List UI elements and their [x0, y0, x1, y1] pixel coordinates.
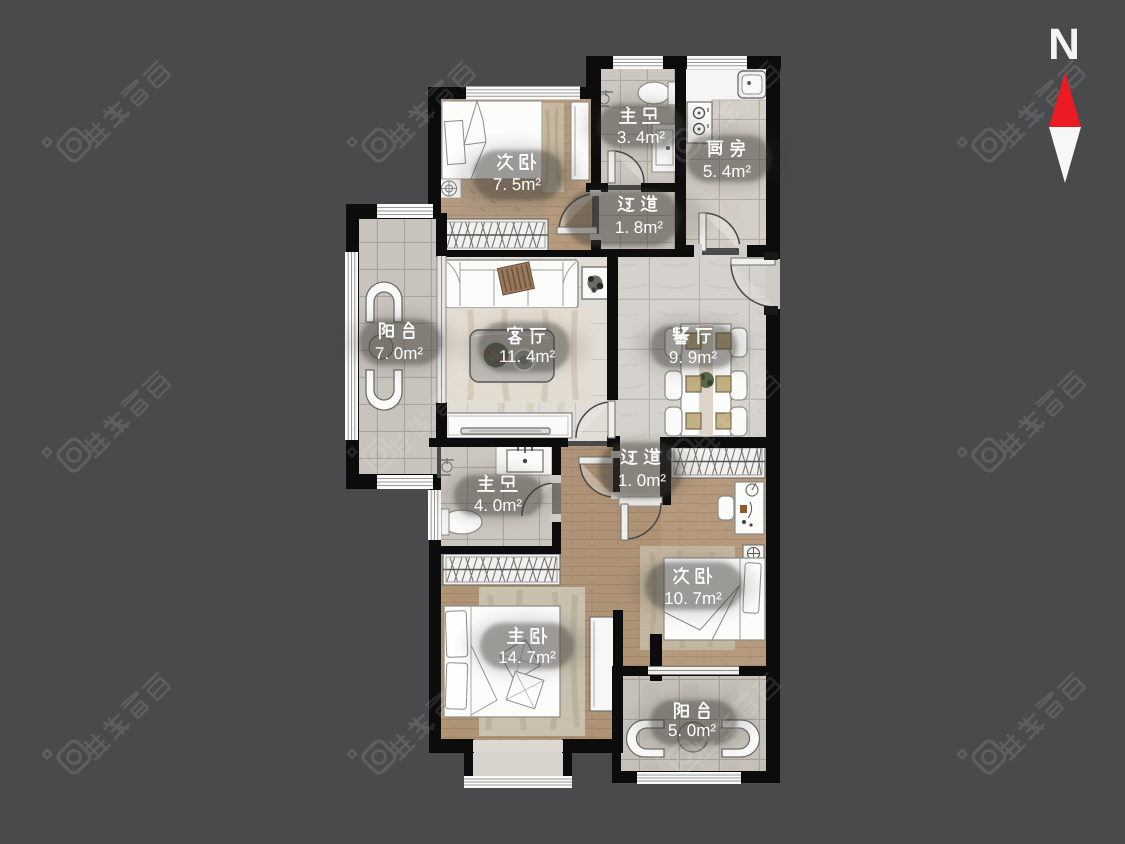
svg-text:7. 0m²: 7. 0m² [375, 344, 424, 363]
svg-text:4. 0m²: 4. 0m² [474, 496, 523, 515]
svg-text:9. 9m²: 9. 9m² [669, 348, 718, 367]
svg-text:1. 8m²: 1. 8m² [615, 218, 664, 237]
svg-text:11. 4m²: 11. 4m² [499, 347, 556, 366]
svg-text:5. 4m²: 5. 4m² [703, 162, 752, 181]
svg-text:10. 7m²: 10. 7m² [664, 589, 722, 608]
svg-text:N: N [1048, 20, 1080, 69]
svg-text:14. 7m²: 14. 7m² [498, 648, 556, 667]
svg-text:7. 5m²: 7. 5m² [493, 175, 542, 194]
svg-text:1. 0m²: 1. 0m² [618, 471, 667, 490]
